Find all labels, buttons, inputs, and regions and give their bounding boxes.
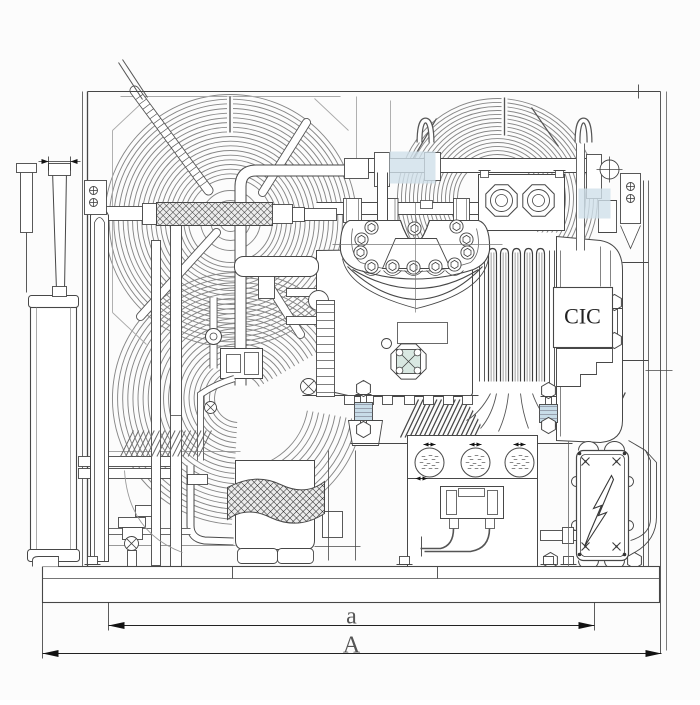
svg-text:A: A	[343, 633, 361, 659]
svg-text:CIC: CIC	[564, 304, 601, 329]
svg-text:a: a	[346, 604, 357, 630]
